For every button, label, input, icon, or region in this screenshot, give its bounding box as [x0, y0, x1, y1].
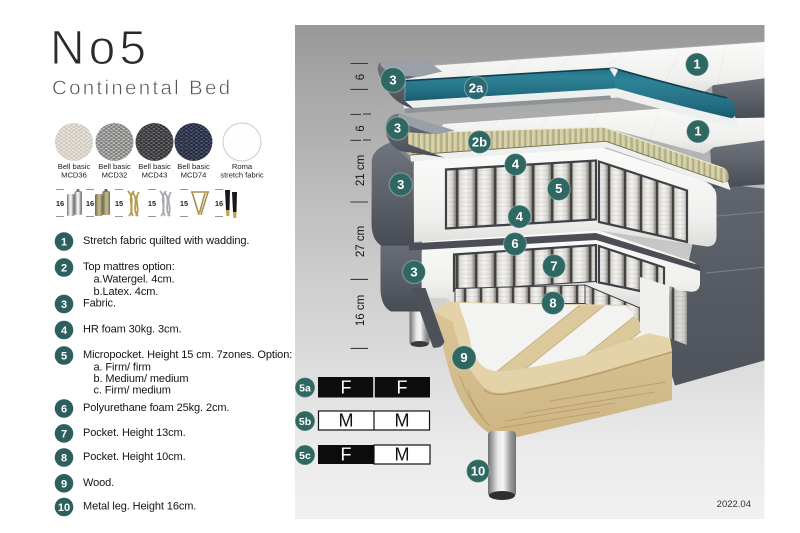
- svg-text:15: 15: [115, 199, 123, 208]
- svg-text:16: 16: [215, 199, 223, 208]
- svg-text:Micropocket. Height 15 cm. 7zo: Micropocket. Height 15 cm. 7zones. Optio…: [83, 349, 292, 361]
- svg-text:M: M: [395, 445, 410, 465]
- svg-text:7: 7: [61, 429, 67, 441]
- svg-text:15: 15: [148, 199, 156, 208]
- svg-text:Wood.: Wood.: [83, 477, 114, 489]
- svg-text:3: 3: [397, 177, 404, 192]
- svg-text:8: 8: [61, 453, 67, 465]
- svg-text:3: 3: [410, 264, 417, 279]
- svg-text:10: 10: [471, 463, 485, 478]
- svg-text:Pocket. Height 13cm.: Pocket. Height 13cm.: [83, 427, 186, 439]
- svg-text:1: 1: [694, 124, 701, 139]
- svg-text:Fabric.: Fabric.: [83, 298, 116, 310]
- svg-text:2022.04: 2022.04: [717, 499, 751, 510]
- svg-text:16 cm: 16 cm: [355, 295, 367, 326]
- svg-text:Polyurethane foam 25kg. 2cm.: Polyurethane foam 25kg. 2cm.: [83, 402, 229, 414]
- svg-text:4: 4: [512, 157, 520, 172]
- svg-text:5c: 5c: [299, 450, 311, 462]
- svg-text:16: 16: [56, 199, 64, 208]
- svg-text:F: F: [341, 445, 352, 465]
- svg-text:7: 7: [550, 258, 557, 273]
- svg-text:a.Watergel. 4cm.: a.Watergel. 4cm.: [94, 274, 175, 286]
- svg-text:MCD74: MCD74: [181, 171, 207, 180]
- svg-text:stretch fabric: stretch fabric: [220, 171, 264, 180]
- svg-text:1: 1: [693, 57, 700, 72]
- svg-text:2: 2: [61, 263, 67, 275]
- svg-text:Pocket. Height 10cm.: Pocket. Height 10cm.: [83, 451, 186, 463]
- svg-text:b. Medium/ medium: b. Medium/ medium: [94, 373, 189, 385]
- svg-text:Metal leg. Height 16cm.: Metal leg. Height 16cm.: [83, 501, 196, 513]
- svg-text:9: 9: [61, 478, 67, 490]
- svg-text:HR foam 30kg. 3cm.: HR foam 30kg. 3cm.: [83, 324, 182, 336]
- svg-text:MCD32: MCD32: [102, 171, 128, 180]
- svg-text:Stretch fabric quilted with wa: Stretch fabric quilted with wadding.: [83, 235, 249, 247]
- svg-text:Continental Bed: Continental Bed: [52, 77, 232, 100]
- svg-text:F: F: [397, 378, 408, 398]
- svg-text:16: 16: [86, 199, 94, 208]
- svg-text:MCD36: MCD36: [61, 171, 87, 180]
- svg-text:5b: 5b: [299, 416, 311, 428]
- svg-text:4: 4: [516, 209, 524, 224]
- svg-text:1: 1: [61, 237, 67, 249]
- svg-text:15: 15: [180, 199, 188, 208]
- svg-text:a. Firm/ firm: a. Firm/ firm: [94, 362, 151, 374]
- svg-text:M: M: [339, 411, 354, 431]
- svg-text:MCD43: MCD43: [142, 171, 168, 180]
- svg-text:No5: No5: [50, 22, 150, 75]
- svg-text:9: 9: [460, 350, 467, 365]
- svg-text:4: 4: [61, 325, 68, 337]
- svg-text:8: 8: [549, 295, 556, 310]
- svg-text:2a: 2a: [469, 80, 484, 95]
- svg-text:F: F: [341, 378, 352, 398]
- svg-text:6: 6: [355, 125, 367, 131]
- svg-text:3: 3: [394, 121, 401, 136]
- svg-text:5: 5: [61, 351, 67, 363]
- svg-text:c. Firm/ medium: c. Firm/ medium: [94, 385, 171, 397]
- svg-text:2b: 2b: [472, 134, 487, 149]
- svg-text:b.Latex. 4cm.: b.Latex. 4cm.: [94, 286, 159, 298]
- svg-text:27 cm: 27 cm: [355, 226, 367, 257]
- svg-text:3: 3: [61, 299, 67, 311]
- svg-text:3: 3: [389, 72, 396, 87]
- svg-text:6: 6: [511, 236, 518, 251]
- svg-text:6: 6: [61, 404, 67, 416]
- svg-text:6: 6: [355, 74, 367, 80]
- svg-text:21 cm: 21 cm: [355, 155, 367, 186]
- svg-text:Top mattres option:: Top mattres option:: [83, 261, 175, 273]
- svg-text:5a: 5a: [299, 382, 311, 394]
- svg-text:M: M: [395, 411, 410, 431]
- svg-text:10: 10: [58, 502, 70, 514]
- svg-text:5: 5: [555, 181, 562, 196]
